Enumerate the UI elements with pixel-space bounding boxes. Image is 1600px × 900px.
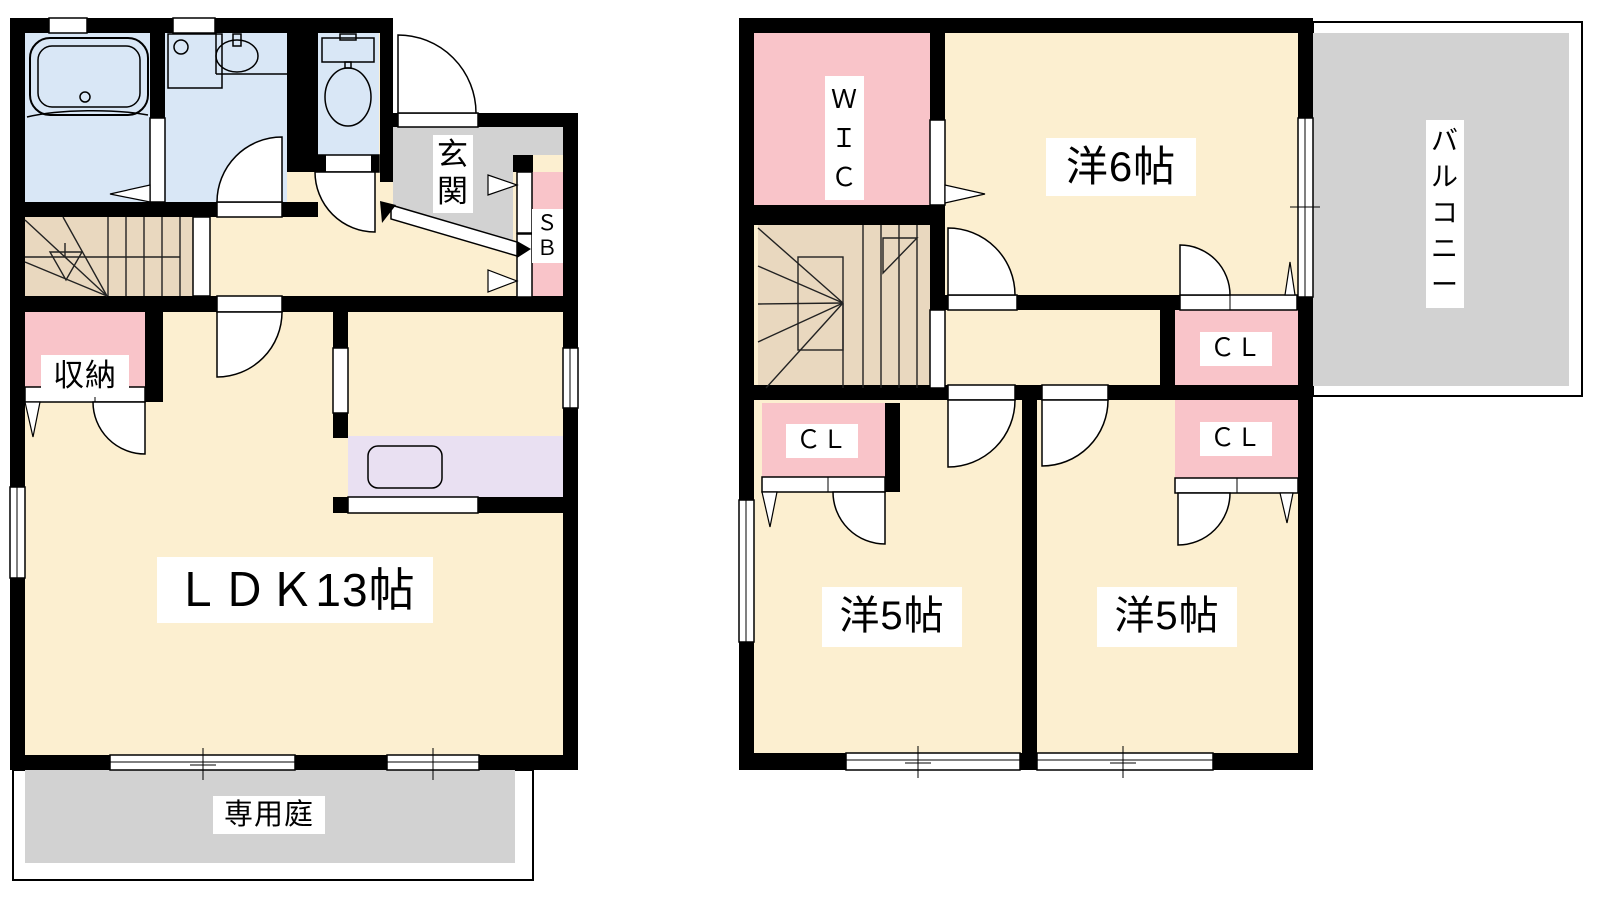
stairs2-opening (930, 310, 945, 388)
closet-left-door (762, 477, 885, 492)
washroom-door-opening (217, 202, 282, 217)
kitchen-opening (333, 348, 348, 413)
label-bedroom6: 洋6帖 (1046, 138, 1196, 196)
label-ldk: ＬＤＫ13帖 (157, 557, 433, 623)
room-bathroom (25, 33, 150, 202)
window-bedroom5r-bottom (1037, 753, 1213, 770)
bath-door (150, 118, 165, 202)
front-door-threshold (398, 113, 478, 127)
label-storage: 収納 (41, 355, 129, 397)
bedroom5l-door-opening (948, 385, 1015, 400)
label-entrance: 玄 関 (433, 135, 473, 213)
label-bedroom5-left: 洋5帖 (822, 587, 962, 647)
label-balcony: バ ル コ ニ ー (1426, 120, 1464, 308)
window-wash-top (173, 18, 215, 33)
label-garden: 専用庭 (213, 796, 325, 834)
window-bedroom5l-bottom (846, 753, 1020, 770)
label-wic: Ｗ Ｉ Ｃ (825, 76, 864, 200)
ldk-door-opening (217, 296, 282, 312)
bedroom5r-door-opening (1042, 385, 1108, 400)
wic-door (930, 120, 945, 205)
label-closet-bottom: ＣＬ (1200, 422, 1272, 456)
closet-top-door (1180, 295, 1297, 310)
label-closet-left: ＣＬ (786, 424, 858, 458)
floor1-plan (10, 0, 578, 880)
bedroom6-door-opening (948, 295, 1017, 310)
toilet-door (318, 155, 379, 172)
stairs-opening (193, 217, 210, 296)
shoebox-door-upper (517, 172, 532, 233)
stairs-second-floor (758, 225, 930, 388)
label-bedroom5-right: 洋5帖 (1097, 587, 1237, 647)
window-bath-top (49, 18, 87, 33)
kitchen-pass-counter (348, 497, 478, 513)
room-toilet (318, 33, 379, 155)
label-closet-top: ＣＬ (1200, 332, 1272, 366)
label-shoebox: Ｓ Ｂ (532, 209, 563, 263)
floorplan-page: ＬＤＫ13帖 専用庭 玄 関 収納 Ｓ Ｂ Ｗ Ｉ Ｃ 洋6帖 洋5帖 洋5帖 … (0, 0, 1600, 900)
